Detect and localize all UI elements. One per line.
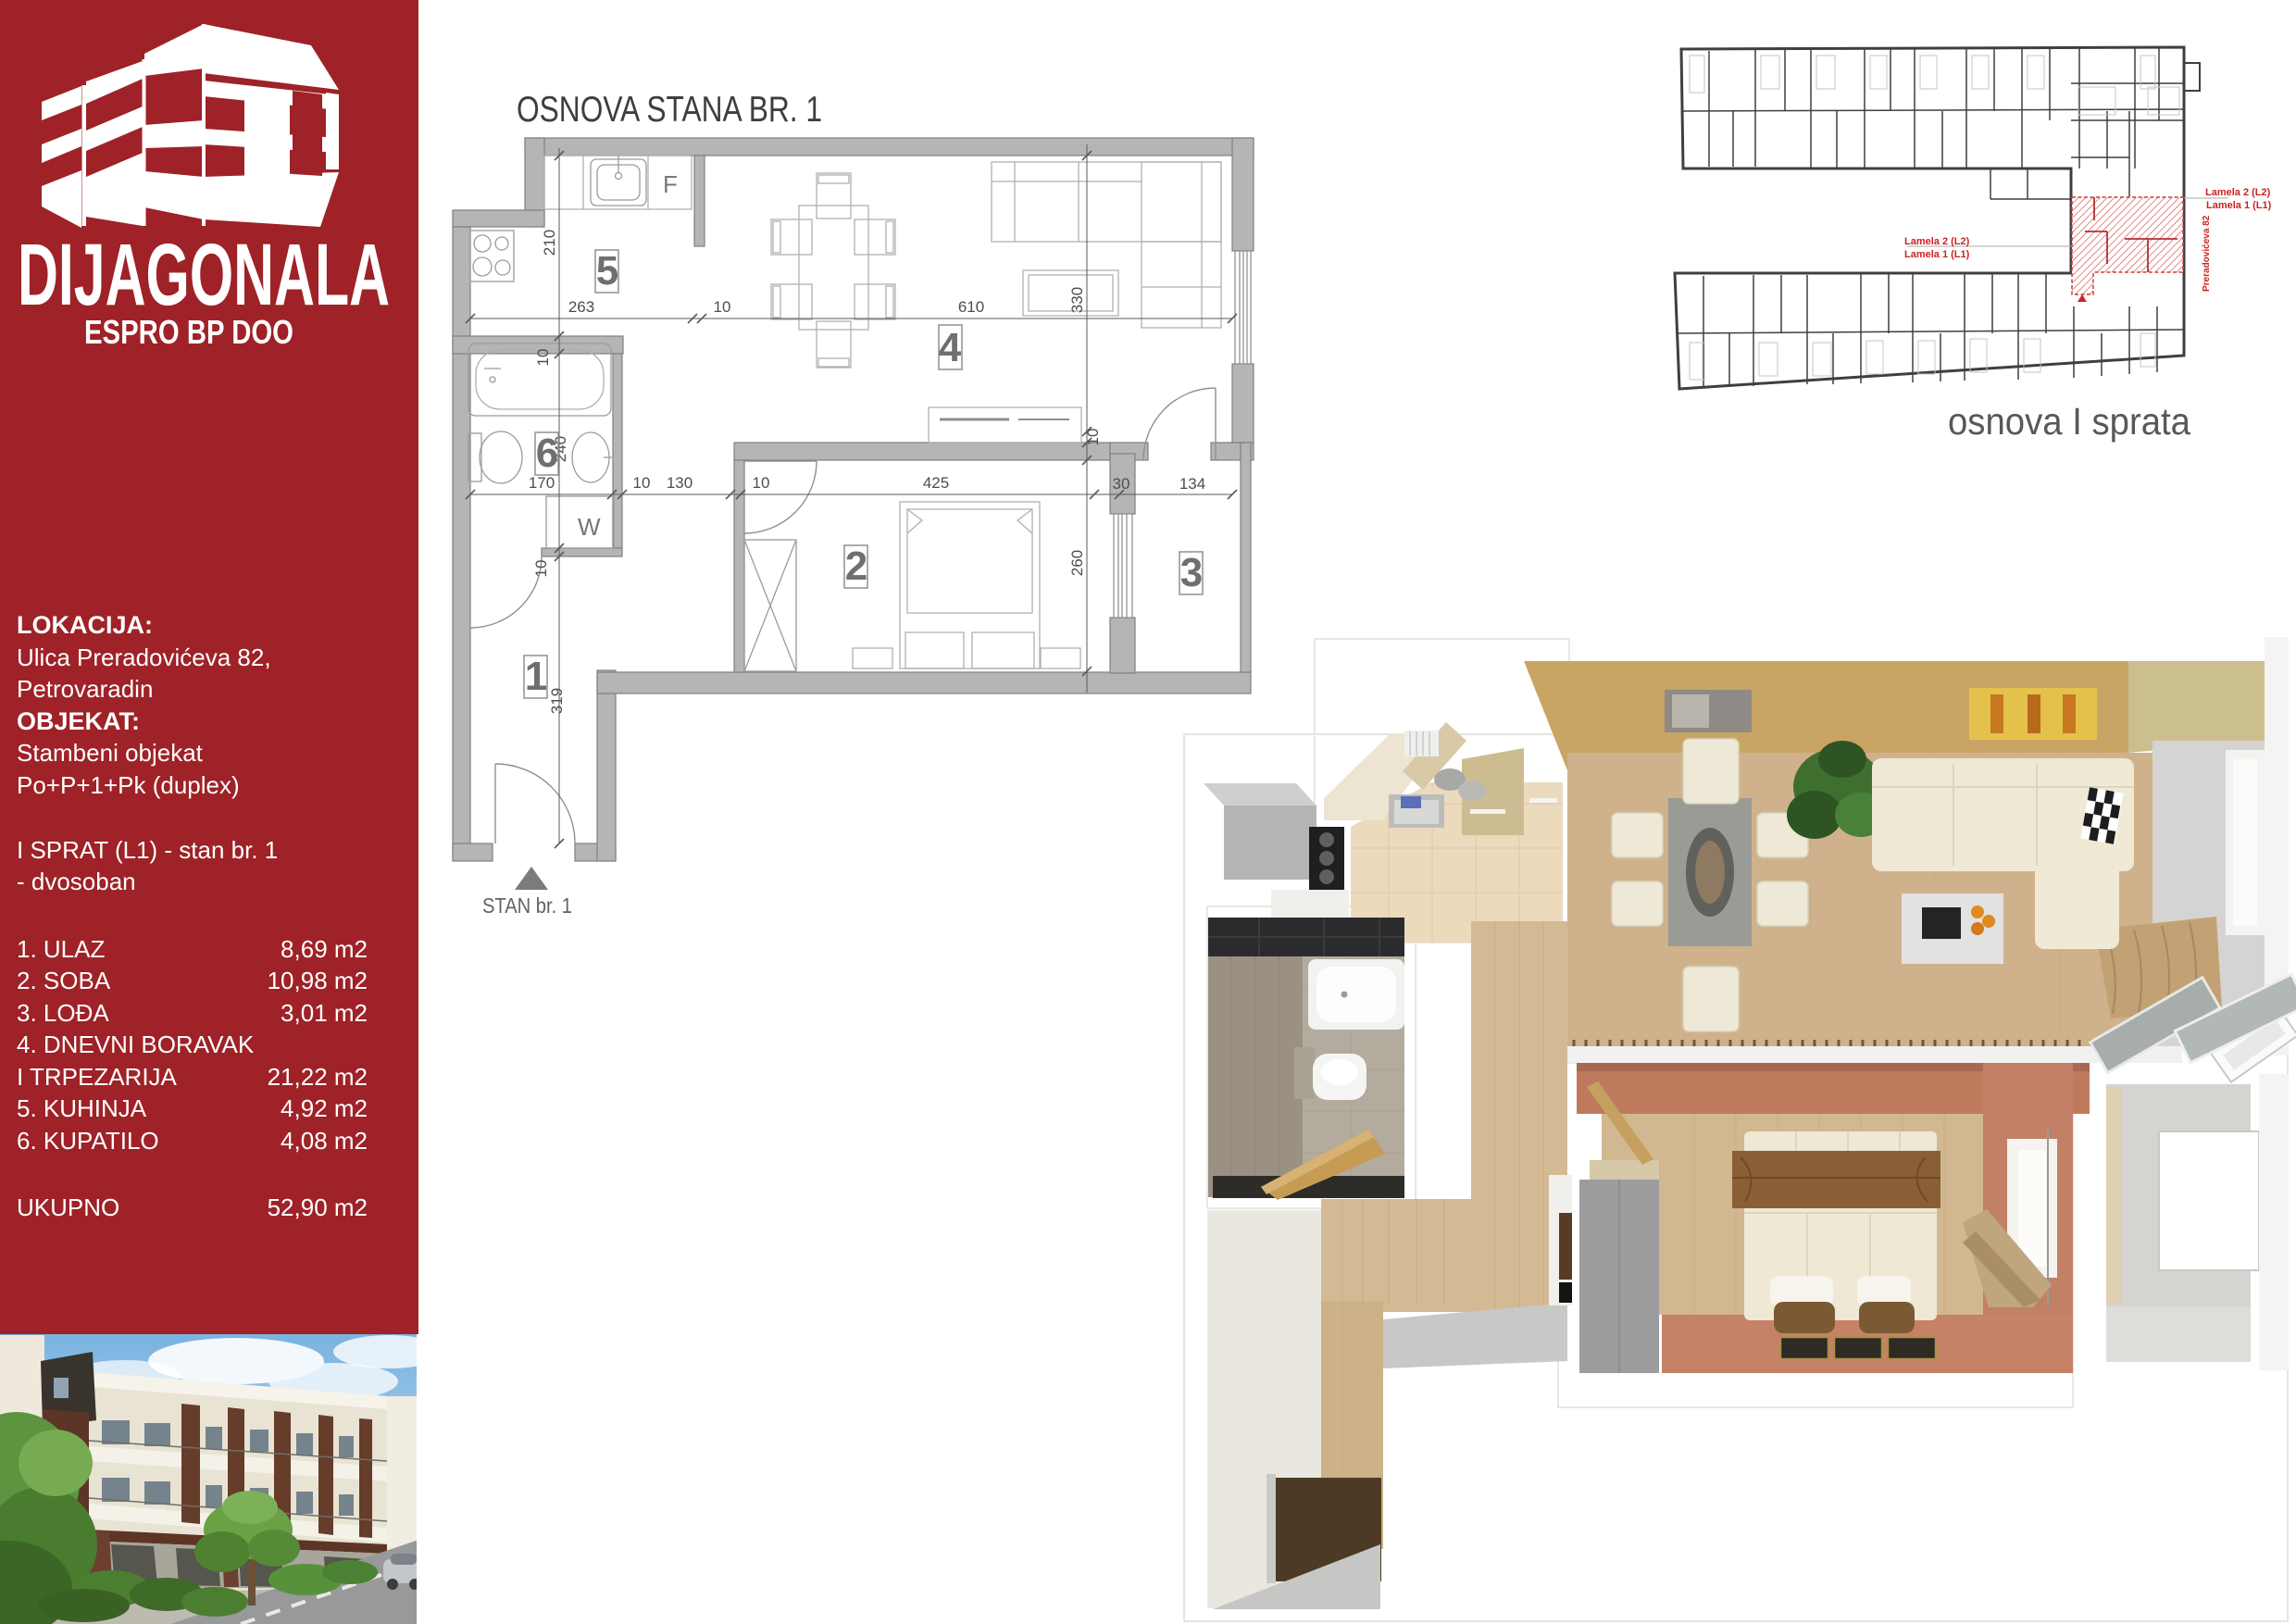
svg-text:osnova I sprata: osnova I sprata bbox=[1948, 400, 2190, 443]
svg-text:10,98 m2: 10,98 m2 bbox=[268, 967, 368, 994]
svg-text:3,01 m2: 3,01 m2 bbox=[281, 999, 368, 1027]
svg-text:170: 170 bbox=[529, 474, 555, 492]
svg-text:330: 330 bbox=[1068, 287, 1086, 313]
svg-text:- dvosoban: - dvosoban bbox=[17, 868, 136, 895]
svg-text:4,92 m2: 4,92 m2 bbox=[281, 1094, 368, 1122]
svg-text:21,22 m2: 21,22 m2 bbox=[268, 1063, 368, 1091]
svg-text:610: 610 bbox=[958, 298, 984, 316]
svg-text:1. ULAZ: 1. ULAZ bbox=[17, 935, 105, 963]
svg-text:260: 260 bbox=[1068, 550, 1086, 576]
svg-text:5: 5 bbox=[596, 248, 618, 294]
svg-text:3: 3 bbox=[1180, 550, 1203, 595]
svg-text:134: 134 bbox=[1179, 475, 1205, 493]
svg-text:8,69 m2: 8,69 m2 bbox=[281, 935, 368, 963]
svg-text:Lamela 1 (L1): Lamela 1 (L1) bbox=[1904, 249, 1970, 260]
svg-text:10: 10 bbox=[714, 298, 731, 316]
svg-text:210: 210 bbox=[541, 230, 558, 256]
svg-text:Stambeni objekat: Stambeni objekat bbox=[17, 739, 204, 767]
svg-text:Ulica Preradovićeva 82,: Ulica Preradovićeva 82, bbox=[17, 643, 271, 671]
svg-text:4,08 m2: 4,08 m2 bbox=[281, 1127, 368, 1155]
svg-text:10: 10 bbox=[534, 349, 552, 367]
svg-text:30: 30 bbox=[1113, 475, 1130, 493]
svg-text:Lamela 2 (L2): Lamela 2 (L2) bbox=[2205, 187, 2271, 198]
svg-text:130: 130 bbox=[667, 474, 693, 492]
svg-text:STAN br. 1: STAN br. 1 bbox=[482, 893, 572, 918]
svg-text:6. KUPATILO: 6. KUPATILO bbox=[17, 1127, 159, 1155]
svg-text:2. SOBA: 2. SOBA bbox=[17, 967, 111, 994]
svg-text:3. LOĐA: 3. LOĐA bbox=[17, 999, 109, 1027]
svg-text:319: 319 bbox=[548, 688, 566, 714]
svg-text:52,90 m2: 52,90 m2 bbox=[268, 1193, 368, 1221]
svg-text:Preradovićeva 82: Preradovićeva 82 bbox=[2202, 215, 2212, 292]
svg-text:W: W bbox=[578, 513, 601, 541]
svg-text:2: 2 bbox=[845, 543, 867, 589]
svg-text:DIJAGONALA: DIJAGONALA bbox=[18, 226, 390, 324]
svg-text:Lamela 2 (L2): Lamela 2 (L2) bbox=[1904, 236, 1970, 247]
svg-text:6: 6 bbox=[536, 431, 558, 476]
svg-text:4. DNEVNI BORAVAK: 4. DNEVNI BORAVAK bbox=[17, 1031, 255, 1058]
svg-text:4: 4 bbox=[939, 325, 962, 370]
svg-text:263: 263 bbox=[568, 298, 594, 316]
svg-text:1: 1 bbox=[525, 654, 547, 699]
svg-text:OBJEKAT:: OBJEKAT: bbox=[17, 707, 140, 735]
svg-text:F: F bbox=[663, 170, 678, 198]
svg-text:Po+P+1+Pk (duplex): Po+P+1+Pk (duplex) bbox=[17, 771, 240, 799]
svg-text:10: 10 bbox=[1084, 429, 1102, 446]
svg-text:Petrovaradin: Petrovaradin bbox=[17, 675, 153, 703]
svg-text:5. KUHINJA: 5. KUHINJA bbox=[17, 1094, 147, 1122]
svg-text:10: 10 bbox=[532, 560, 550, 578]
svg-text:10: 10 bbox=[753, 474, 770, 492]
svg-text:OSNOVA STANA BR. 1: OSNOVA STANA BR. 1 bbox=[517, 90, 822, 130]
svg-text:425: 425 bbox=[923, 474, 949, 492]
svg-text:10: 10 bbox=[633, 474, 651, 492]
svg-text:ESPRO BP DOO: ESPRO BP DOO bbox=[84, 313, 293, 351]
svg-text:I TRPEZARIJA: I TRPEZARIJA bbox=[17, 1063, 178, 1091]
svg-text:I SPRAT (L1) - stan br. 1: I SPRAT (L1) - stan br. 1 bbox=[17, 836, 278, 864]
svg-text:Lamela 1 (L1): Lamela 1 (L1) bbox=[2206, 200, 2272, 211]
svg-text:LOKACIJA:: LOKACIJA: bbox=[17, 611, 153, 639]
svg-text:UKUPNO: UKUPNO bbox=[17, 1193, 119, 1221]
